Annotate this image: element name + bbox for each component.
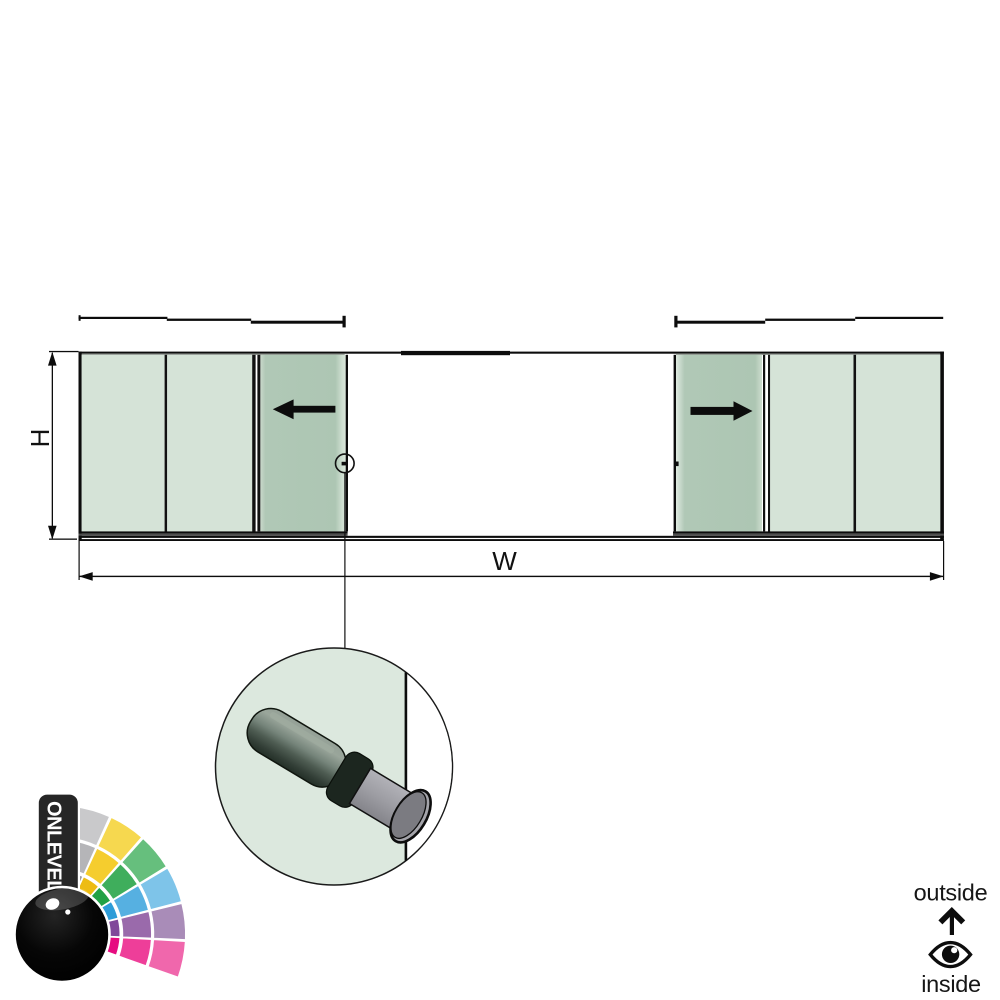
svg-text:ONLEVEL: ONLEVEL bbox=[43, 801, 65, 892]
svg-text:H: H bbox=[25, 429, 55, 448]
svg-text:outside: outside bbox=[914, 880, 988, 906]
svg-text:W: W bbox=[492, 546, 517, 576]
svg-text:inside: inside bbox=[921, 971, 981, 997]
